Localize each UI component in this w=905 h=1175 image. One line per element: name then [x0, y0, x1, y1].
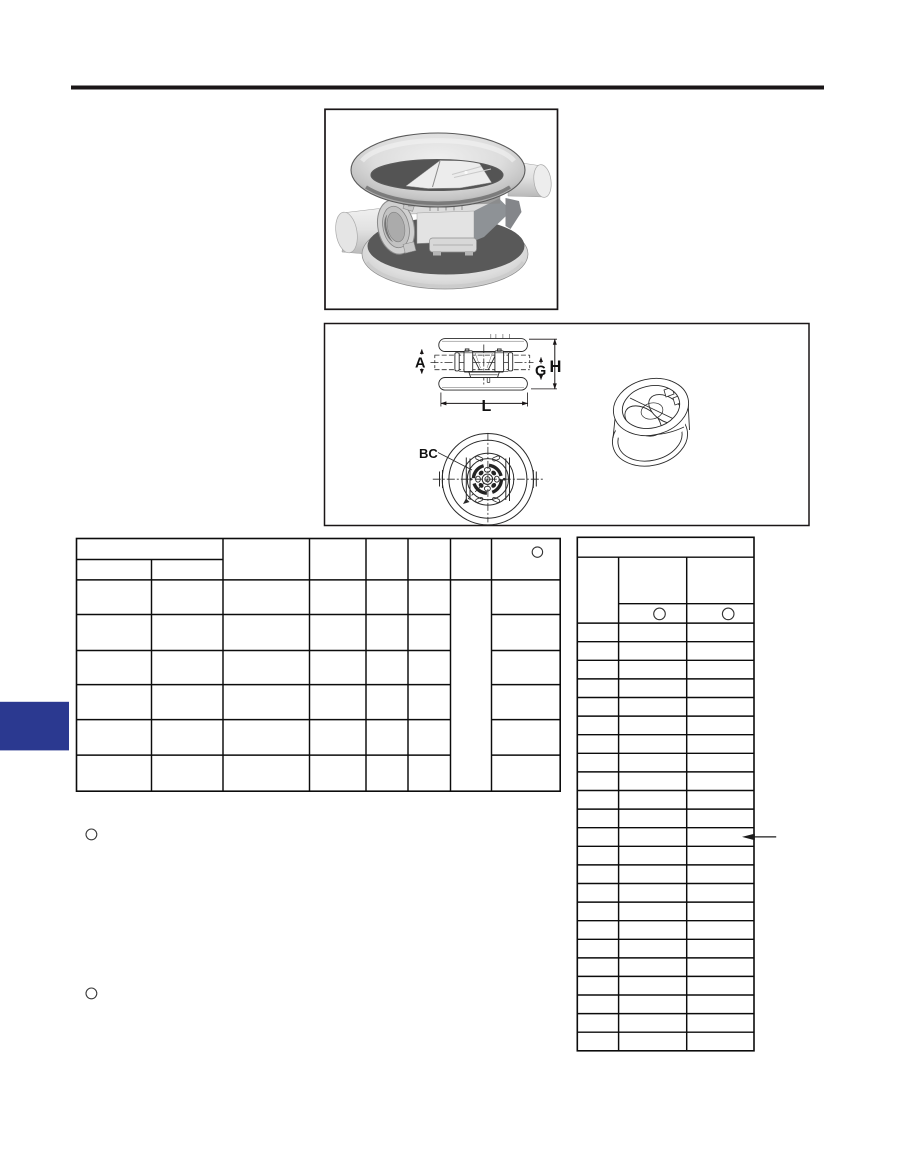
svg-text:BC: BC [419, 446, 438, 461]
svg-text:G: G [535, 363, 546, 379]
svg-text:L: L [482, 398, 492, 415]
svg-text:A: A [415, 356, 426, 372]
svg-text:H: H [550, 358, 562, 376]
